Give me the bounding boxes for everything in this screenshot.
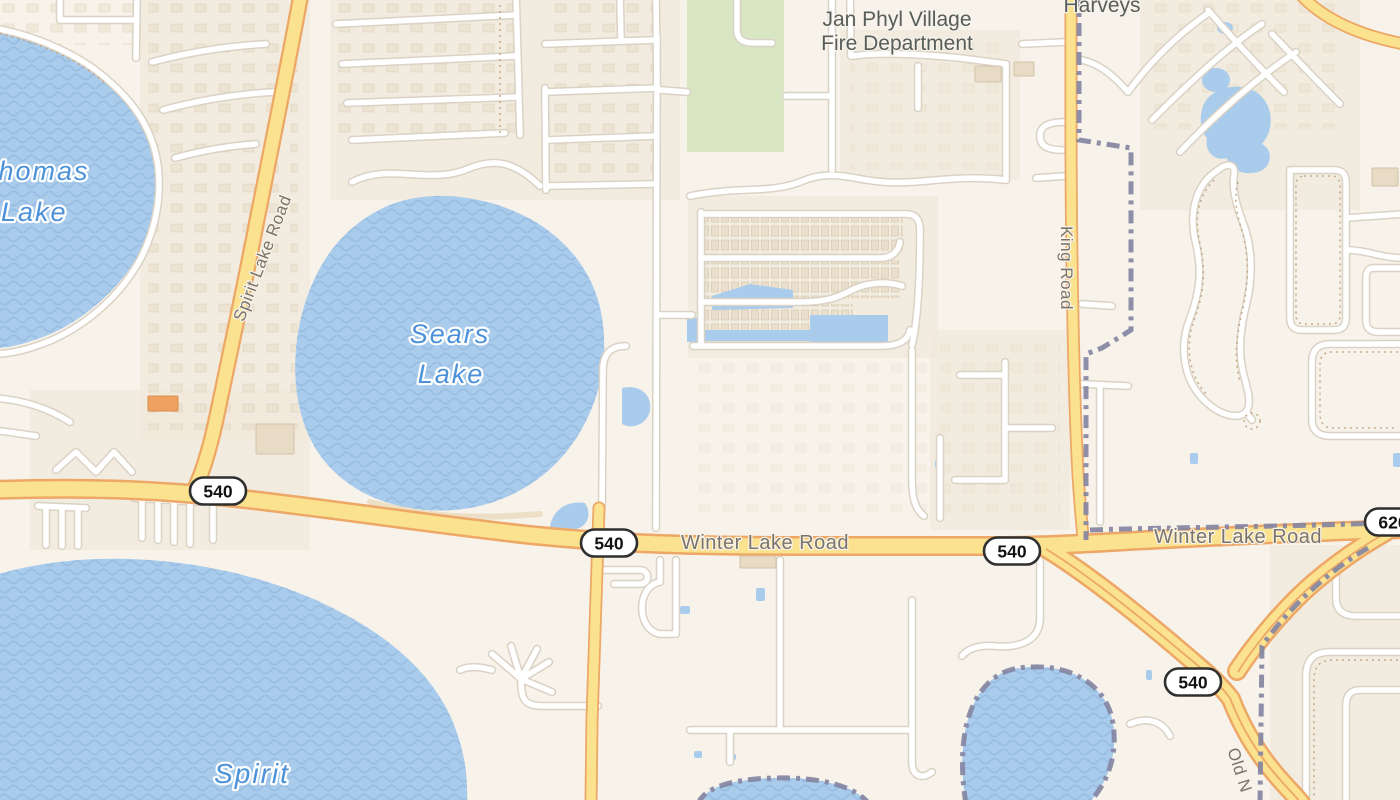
poi-label-fire-department-line1: Jan Phyl Village xyxy=(822,8,971,31)
route-shield-540-junction-west: 540 xyxy=(190,478,246,505)
route-shield-540-junction-west-number: 540 xyxy=(203,482,232,502)
route-shield-620-east-number: 620 xyxy=(1378,513,1400,533)
route-shield-540-east-number: 540 xyxy=(997,542,1026,562)
road-label-winter-lake-road-west: Winter Lake Road xyxy=(681,532,849,554)
poi-label-fire-department-line2: Fire Department xyxy=(821,32,973,55)
route-shield-540-center-number: 540 xyxy=(594,534,623,554)
route-shield-540-south-number: 540 xyxy=(1178,673,1207,693)
lake-label-sears-line1: Sears xyxy=(410,319,491,349)
route-shield-540-south: 540 xyxy=(1165,669,1221,696)
lake-label-sears-line2: Lake xyxy=(418,359,485,389)
lake-label-spirit-line1: Spirit xyxy=(214,758,290,789)
road-label-king-road: King Road xyxy=(1057,226,1076,310)
map-svg: Jan Phyl Village Fire Department Harveys… xyxy=(0,0,1400,800)
lake-label-thomas-line2: Lake xyxy=(1,197,68,227)
map-canvas[interactable]: Jan Phyl Village Fire Department Harveys… xyxy=(0,0,1400,800)
road-label-winter-lake-road-east: Winter Lake Road xyxy=(1154,526,1322,548)
lake-label-thomas-line1: Thomas xyxy=(0,156,90,186)
poi-label-harveys: Harveys xyxy=(1063,0,1140,17)
route-shield-540-east: 540 xyxy=(984,538,1040,565)
route-shield-540-center: 540 xyxy=(581,530,637,557)
route-shield-620-east: 620 xyxy=(1365,509,1400,536)
